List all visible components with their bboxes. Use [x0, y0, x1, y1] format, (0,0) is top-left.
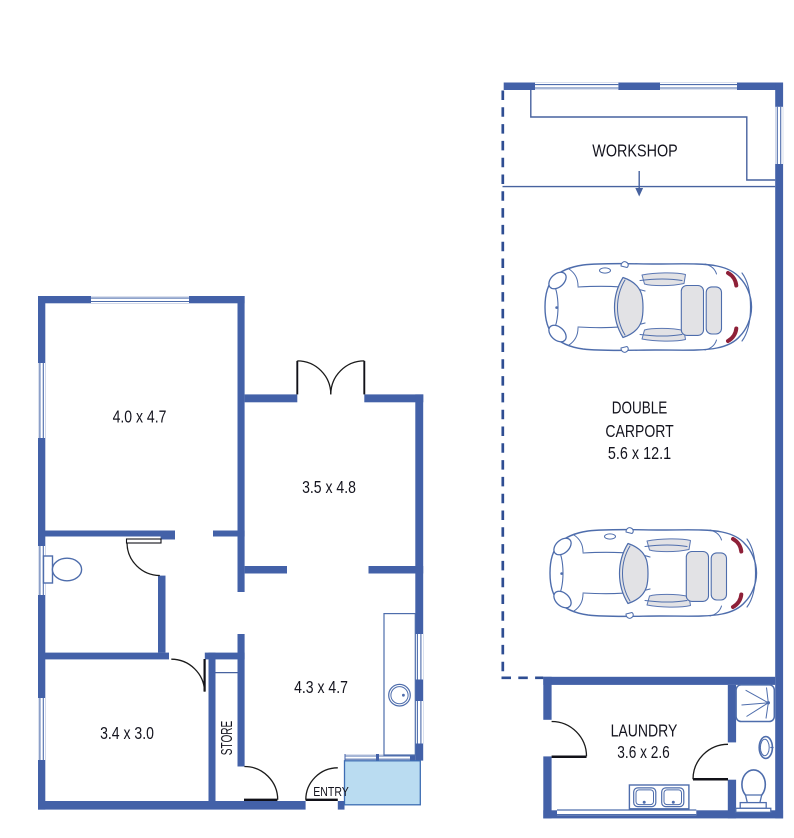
svg-text:CARPORT: CARPORT: [605, 421, 673, 441]
svg-text:WORKSHOP: WORKSHOP: [592, 141, 678, 161]
svg-text:4.3 x 4.7: 4.3 x 4.7: [294, 677, 348, 697]
svg-text:4.0 x 4.7: 4.0 x 4.7: [113, 407, 167, 427]
svg-text:3.4 x 3.0: 3.4 x 3.0: [100, 723, 154, 743]
svg-text:5.6 x 12.1: 5.6 x 12.1: [608, 444, 671, 464]
svg-text:STORE: STORE: [218, 721, 236, 756]
svg-text:3.5 x 4.8: 3.5 x 4.8: [302, 477, 356, 497]
svg-text:ENTRY: ENTRY: [313, 784, 349, 799]
svg-text:LAUNDRY: LAUNDRY: [611, 721, 678, 741]
svg-text:3.6 x 2.6: 3.6 x 2.6: [617, 743, 670, 762]
svg-text:DOUBLE: DOUBLE: [612, 399, 667, 418]
